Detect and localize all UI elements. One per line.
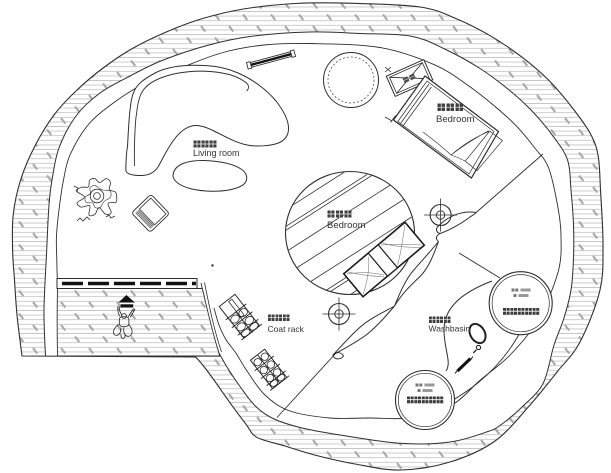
- svg-text:Coat rack: Coat rack: [268, 324, 305, 334]
- svg-text:Living room: Living room: [193, 148, 240, 158]
- svg-text:Bedroom: Bedroom: [436, 114, 475, 125]
- svg-text:Washbasin: Washbasin: [429, 324, 471, 334]
- svg-text:Bedroom: Bedroom: [327, 220, 366, 231]
